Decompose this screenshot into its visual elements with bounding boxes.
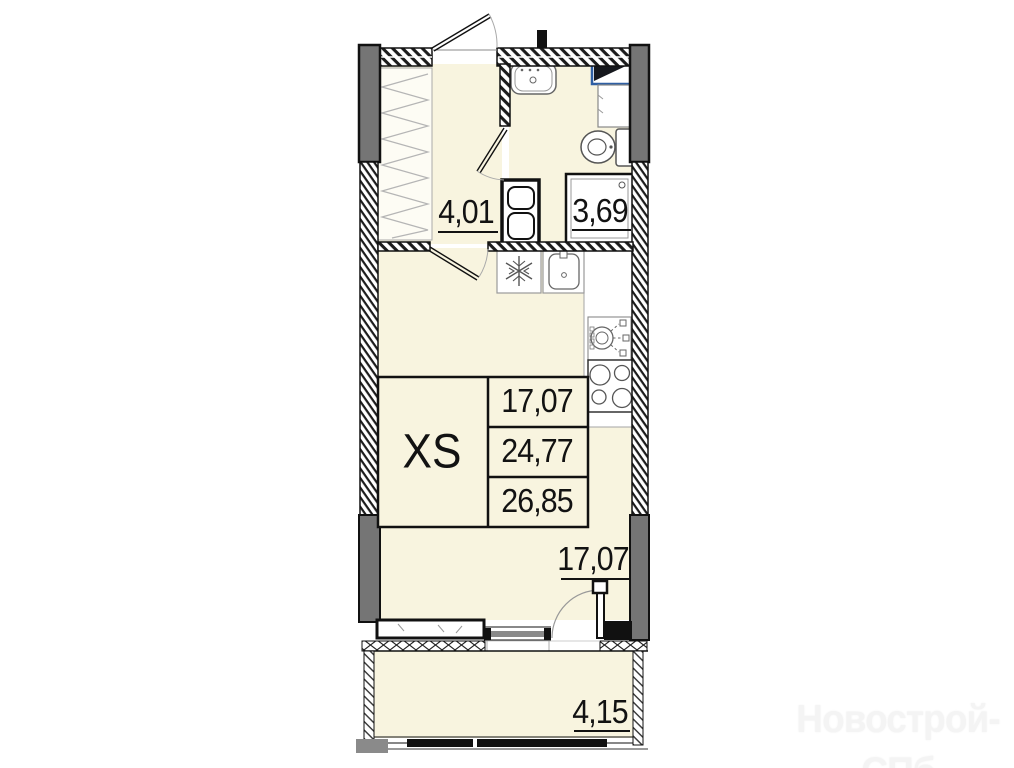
pilaster-top-right	[630, 45, 649, 162]
room-area-label: 17,07	[557, 540, 628, 578]
balcony-window	[484, 627, 551, 640]
balcony-glazing	[374, 739, 633, 747]
bathroom-area-underline	[572, 229, 631, 231]
bathroom-cabinet	[598, 85, 631, 127]
table-row-living-area: 17,07	[501, 382, 572, 420]
unit-type-label: XS	[403, 425, 462, 480]
hallway-area-underline	[438, 231, 498, 233]
wardrobe	[378, 68, 432, 240]
bathroom-area-label: 3,69	[572, 192, 627, 230]
table-row-apartment-area: 24,77	[501, 432, 572, 470]
watermark: Новострой-СПб	[788, 694, 1008, 746]
fridge-icon	[497, 249, 541, 293]
adjacent-wall-stub	[356, 739, 388, 753]
pilaster-bottom-right	[630, 515, 649, 640]
appliance-block	[502, 180, 539, 244]
pilaster-bottom-left	[359, 515, 380, 622]
hallway-area-label: 4,01	[438, 193, 493, 231]
window-sill-wall	[377, 620, 484, 638]
washing-machine-icon	[588, 317, 631, 360]
bathroom-sink	[511, 63, 556, 94]
wall-segment	[604, 621, 632, 640]
table-row-total-area: 26,85	[501, 482, 572, 520]
pilaster-top-left	[359, 45, 380, 162]
balcony-area-label: 4,15	[572, 693, 627, 731]
room-area-underline	[561, 578, 629, 580]
entry-door	[432, 14, 497, 51]
stove-icon	[588, 360, 633, 412]
vent-stub	[537, 30, 547, 48]
insulation-strip	[362, 641, 647, 651]
kitchen-sink	[543, 249, 584, 293]
balcony-area-underline	[574, 730, 630, 732]
floor-plan-canvas: 4,01 3,69 XS 17,07 24,77 26,85 17,07 4,1…	[0, 0, 1014, 768]
